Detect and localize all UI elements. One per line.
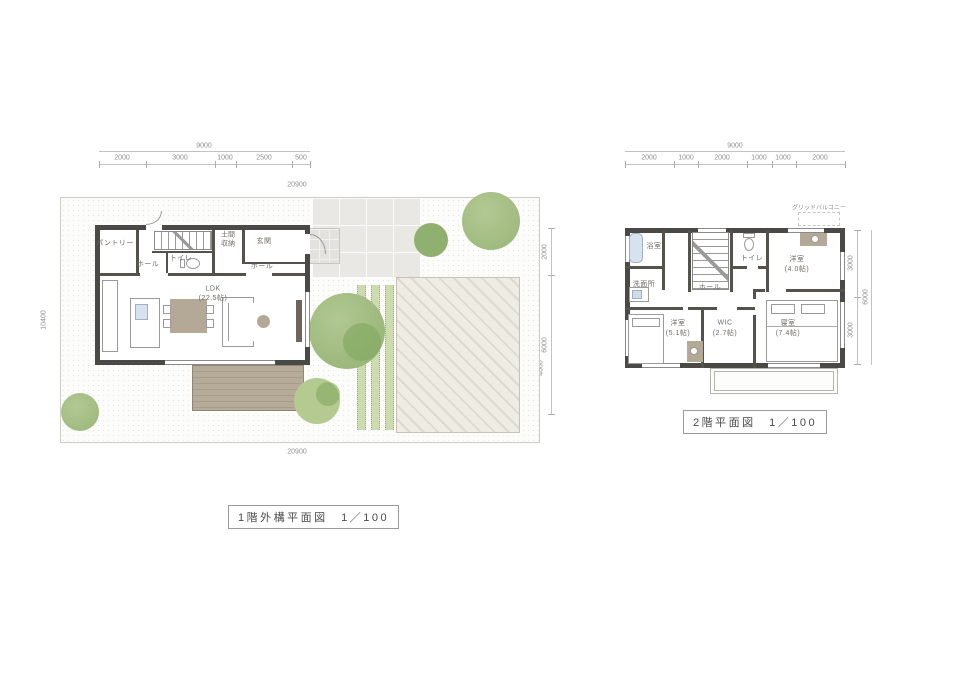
plan1-site-width-bottom: 20900 (287, 449, 306, 456)
dining-chair (206, 305, 214, 314)
plan2-caption: 2階平面図 1／100 (683, 410, 827, 434)
plan2-dim-seg-3: 2000 (714, 155, 730, 162)
room-label-pantry: パントリー (96, 238, 134, 248)
terrace-hatch (396, 277, 520, 433)
room-size-bedroom-b: (5.1帖) (666, 328, 690, 338)
dining-chair (206, 319, 214, 328)
room-label-hall-b: ホール (251, 261, 274, 271)
balcony-inner-line (714, 371, 834, 391)
room-label-bedroom-a: 洋室 (790, 254, 805, 264)
window (165, 360, 275, 365)
tick (548, 228, 555, 229)
tick (548, 275, 555, 276)
tv-board (296, 300, 302, 342)
room-size-wic: (2.7帖) (713, 328, 737, 338)
bathtub (629, 233, 643, 263)
tick (99, 161, 100, 168)
tree-shade (343, 323, 381, 361)
room-size-master-bedroom: (7.4帖) (776, 328, 800, 338)
bed-pillow (632, 318, 660, 327)
room-label-hall: ホール (699, 282, 722, 292)
tick (854, 230, 861, 231)
bed-pillow (801, 304, 825, 314)
plan2-dim-seg-2: 1000 (678, 155, 694, 162)
plan2-dimline-right-outer (871, 230, 872, 365)
plan1-dim-seg-4: 2500 (256, 155, 272, 162)
tick (292, 161, 293, 168)
side-table (257, 315, 270, 328)
plan2-dim-seg-6: 2000 (812, 155, 828, 162)
bed-pillow (771, 304, 795, 314)
room-label-master-bedroom: 寝室 (781, 318, 796, 328)
tick (310, 161, 311, 168)
wall-segment (753, 289, 756, 299)
tree (462, 192, 520, 250)
tick (698, 161, 699, 168)
room-size-ldk: (22.5帖) (199, 293, 228, 303)
room-label-toilet: トイレ (741, 253, 764, 263)
room-label-doma-storage: 土間収納 (220, 231, 237, 249)
plan1-site-height-left: 10400 (41, 310, 48, 329)
tick (854, 297, 861, 298)
wall-segment (100, 273, 140, 276)
room-label-bedroom-b: 洋室 (671, 318, 686, 328)
tree (414, 223, 448, 257)
room-label-wic: WIC (717, 320, 732, 327)
tick (854, 364, 861, 365)
room-label-hall-a: ホール (137, 259, 160, 269)
tick (625, 161, 626, 168)
plan1-site-width-top: 20900 (287, 182, 306, 189)
wall-segment (212, 230, 215, 273)
plan1-dim-seg-2: 3000 (172, 155, 188, 162)
plan2-dim-seg-5: 1000 (775, 155, 791, 162)
window (840, 252, 845, 280)
plan1-dim-seg-3: 1000 (217, 155, 233, 162)
wall-segment (730, 230, 733, 292)
tick (548, 414, 555, 415)
tick (772, 161, 773, 168)
wall-segment (758, 266, 769, 269)
wall-segment (662, 230, 665, 268)
balcony-label: グリッドバルコニー (792, 203, 846, 212)
room-label-bath: 浴室 (647, 241, 662, 251)
wash-basin (632, 290, 642, 299)
drawing-sheet: 9000 2000 3000 1000 2500 500 20900 20900… (0, 0, 960, 678)
wood-deck (192, 365, 304, 411)
plan2-dim-right-2: 3000 (848, 322, 855, 338)
door-opening (146, 225, 162, 230)
bed-blanket-line (766, 326, 838, 327)
room-label-entrance: 玄関 (257, 236, 272, 246)
wall-segment (242, 230, 245, 264)
plan2-dim-seg-1: 2000 (641, 155, 657, 162)
dining-chair (163, 305, 171, 314)
plan1-dimline-segments (99, 164, 310, 165)
plan2-dim-total: 9000 (727, 143, 743, 150)
tree (294, 378, 340, 424)
window (305, 292, 310, 347)
plan1-caption: 1階外構平面図 1／100 (228, 505, 399, 529)
plan2-dim-right-1: 3000 (848, 255, 855, 271)
wall-segment (168, 273, 246, 276)
toilet-bowl (744, 238, 754, 251)
tick (747, 161, 748, 168)
plan2-dimline-segments (625, 164, 845, 165)
room-label-ldk: LDK (205, 286, 220, 293)
wall-segment (166, 253, 168, 273)
plan1-dim-total: 9000 (196, 143, 212, 150)
tick (236, 161, 237, 168)
room-size-bedroom-a: (4.0帖) (785, 264, 809, 274)
wall-segment (688, 230, 691, 292)
kitchen-sink (135, 304, 148, 320)
plan1-dim-right-1: 2000 (542, 244, 549, 260)
plan1-dim-seg-5: 500 (295, 155, 307, 162)
tick (146, 161, 147, 168)
plan1-dim-seg-1: 2000 (114, 155, 130, 162)
balcony-outline (798, 212, 840, 226)
wall-segment (753, 315, 756, 368)
tick (215, 161, 216, 168)
room-label-washroom: 洗面所 (633, 279, 656, 289)
wall-segment (272, 273, 305, 276)
dining-table (170, 299, 207, 333)
wall-segment (625, 266, 665, 269)
wall-segment (766, 230, 769, 292)
wall-segment (662, 268, 665, 290)
sofa-cushion-line (228, 303, 254, 341)
window (840, 302, 845, 348)
plan1-dim-right-2: 6000 (542, 337, 549, 353)
tick (674, 161, 675, 168)
wall-segment (786, 289, 845, 292)
plan2-dim-seg-4: 1000 (751, 155, 767, 162)
plan2-dimline-total (625, 151, 845, 152)
wall-segment (95, 225, 310, 230)
dining-chair (163, 319, 171, 328)
tree (61, 393, 99, 431)
wall-segment (733, 266, 747, 269)
dresser-stool (690, 347, 698, 355)
wall-segment (701, 307, 717, 310)
wall-segment (625, 307, 683, 310)
wall-segment (737, 307, 755, 310)
staircase (154, 231, 212, 250)
tree-shade (316, 382, 340, 406)
plan1-dimline-total (99, 151, 310, 152)
plan2-dim-right-total: 6000 (863, 289, 870, 305)
room-label-toilet: トイレ (170, 253, 193, 263)
tick (796, 161, 797, 168)
tick (845, 161, 846, 168)
tree (309, 293, 385, 369)
dresser-stool (811, 235, 819, 243)
hedge-strip (385, 285, 394, 430)
plan1-dimline-right (551, 228, 552, 415)
kitchen-counter (102, 280, 118, 352)
